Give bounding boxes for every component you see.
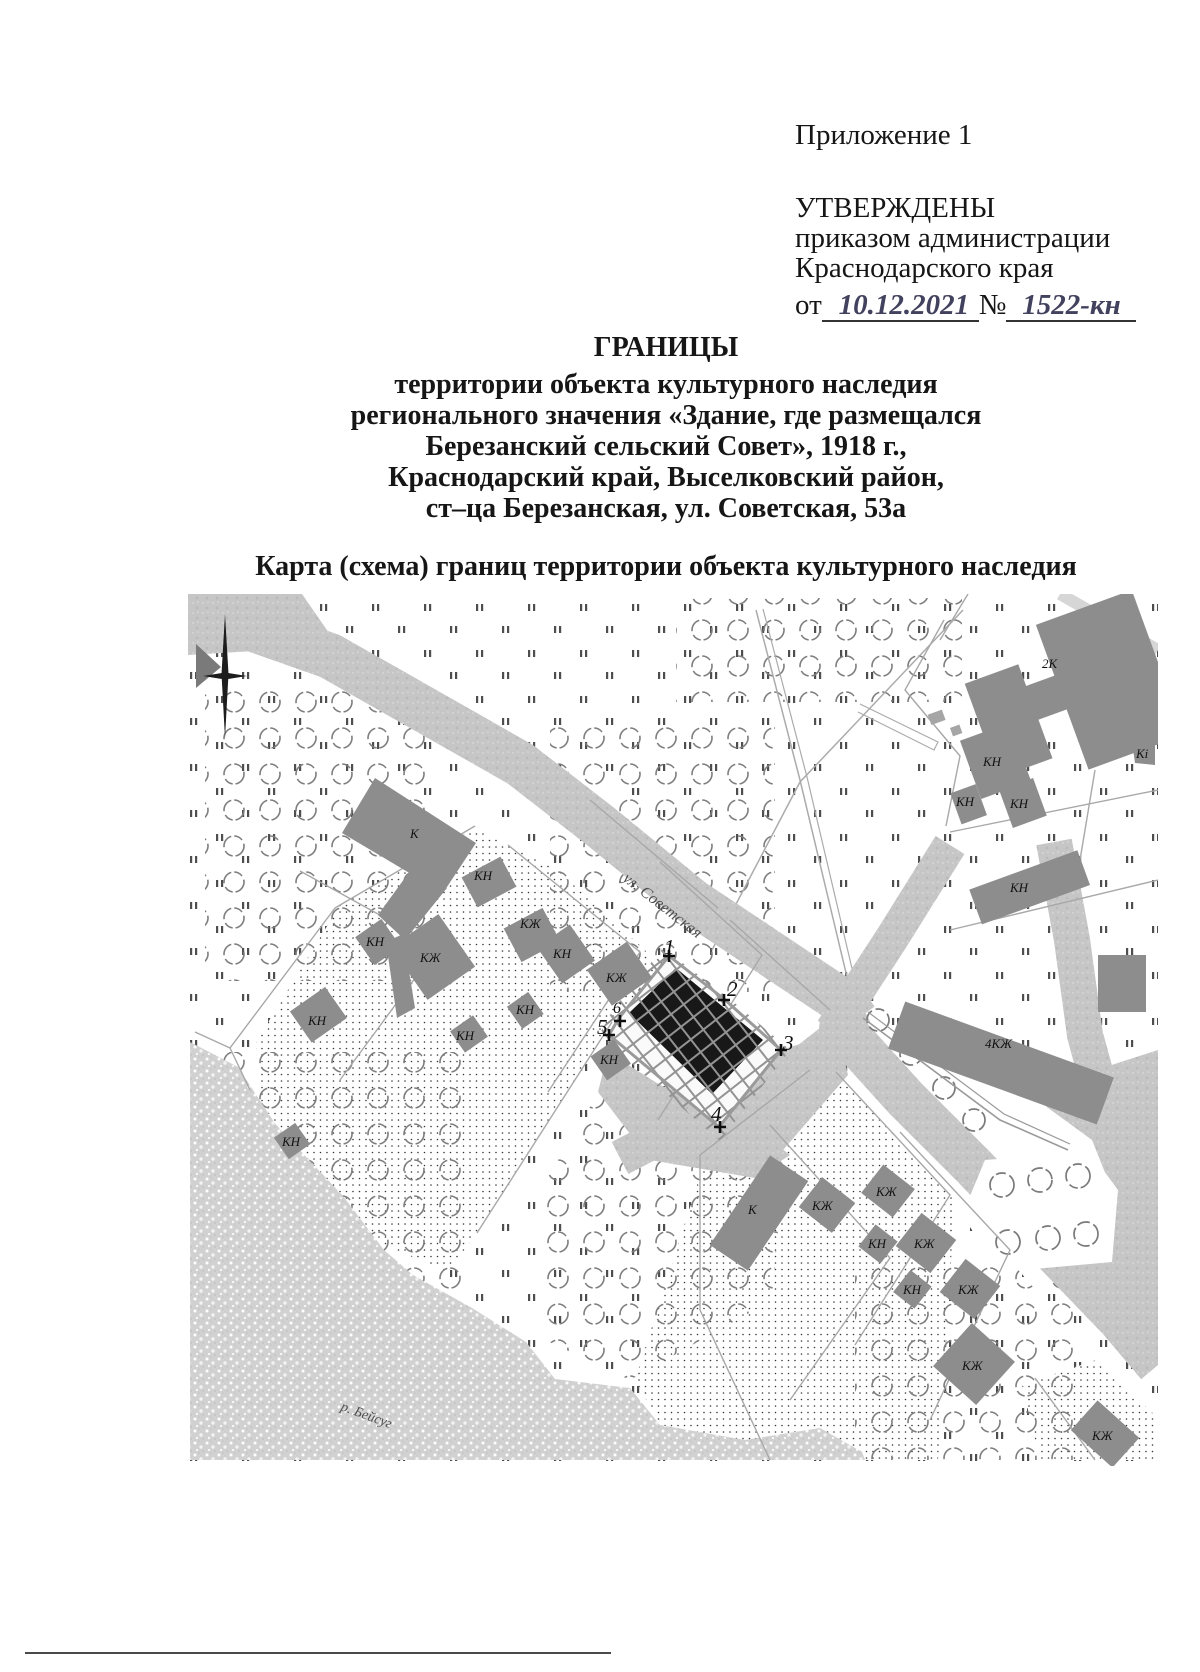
svg-text:6: 6 <box>613 1000 621 1017</box>
svg-text:2К: 2К <box>1042 656 1059 671</box>
svg-text:КН: КН <box>307 1013 327 1028</box>
svg-text:2: 2 <box>727 977 738 1001</box>
svg-text:КН: КН <box>867 1236 887 1251</box>
svg-text:КН: КН <box>455 1028 475 1043</box>
svg-text:КН: КН <box>473 868 493 883</box>
svg-text:КН: КН <box>365 934 385 949</box>
svg-text:КЖ: КЖ <box>1091 1428 1114 1443</box>
svg-text:КЖ: КЖ <box>961 1358 984 1373</box>
svg-text:КЖ: КЖ <box>957 1282 980 1297</box>
svg-text:4: 4 <box>711 1102 722 1126</box>
svg-text:КН: КН <box>902 1282 922 1297</box>
svg-text:3: 3 <box>782 1031 794 1055</box>
svg-text:1: 1 <box>664 935 675 959</box>
svg-text:5: 5 <box>597 1015 608 1039</box>
svg-text:КЖ: КЖ <box>605 970 628 985</box>
svg-text:КН: КН <box>599 1052 619 1067</box>
svg-text:КЖ: КЖ <box>811 1198 834 1213</box>
svg-text:КЖ: КЖ <box>519 916 542 931</box>
svg-text:КН: КН <box>1009 880 1029 895</box>
svg-text:К: К <box>747 1202 758 1217</box>
svg-text:КН: КН <box>552 946 572 961</box>
svg-text:4КЖ: 4КЖ <box>985 1036 1013 1051</box>
svg-text:КН: КН <box>515 1002 535 1017</box>
svg-text:КН: КН <box>1009 796 1029 811</box>
svg-text:КН: КН <box>281 1134 301 1149</box>
svg-text:КЖ: КЖ <box>913 1236 936 1251</box>
svg-text:Кі: Кі <box>1135 746 1149 761</box>
svg-text:КН: КН <box>955 794 975 809</box>
svg-text:КЖ: КЖ <box>875 1184 898 1199</box>
svg-text:К: К <box>409 826 420 841</box>
svg-text:КЖ: КЖ <box>419 950 442 965</box>
svg-text:КН: КН <box>982 754 1002 769</box>
